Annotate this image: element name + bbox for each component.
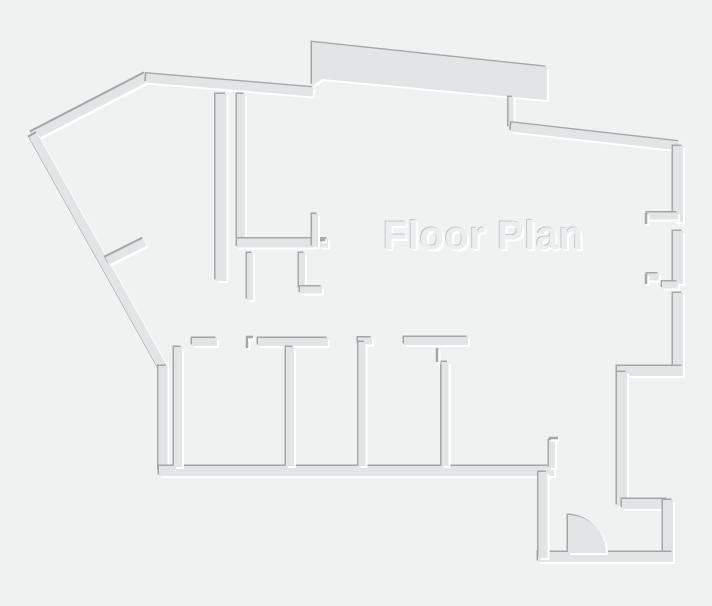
- top-thick-wall: [312, 42, 547, 100]
- outer-left-diagonal: [33, 135, 163, 368]
- floor-plan-title: Floor Plan: [383, 216, 584, 256]
- floor-plan-svg: [0, 0, 712, 606]
- floor-plan-canvas: Floor Plan: [0, 0, 712, 606]
- outer-apex-diagonal: [33, 77, 147, 136]
- door-swing: [568, 515, 606, 553]
- outer-top-right-wall: [511, 127, 679, 146]
